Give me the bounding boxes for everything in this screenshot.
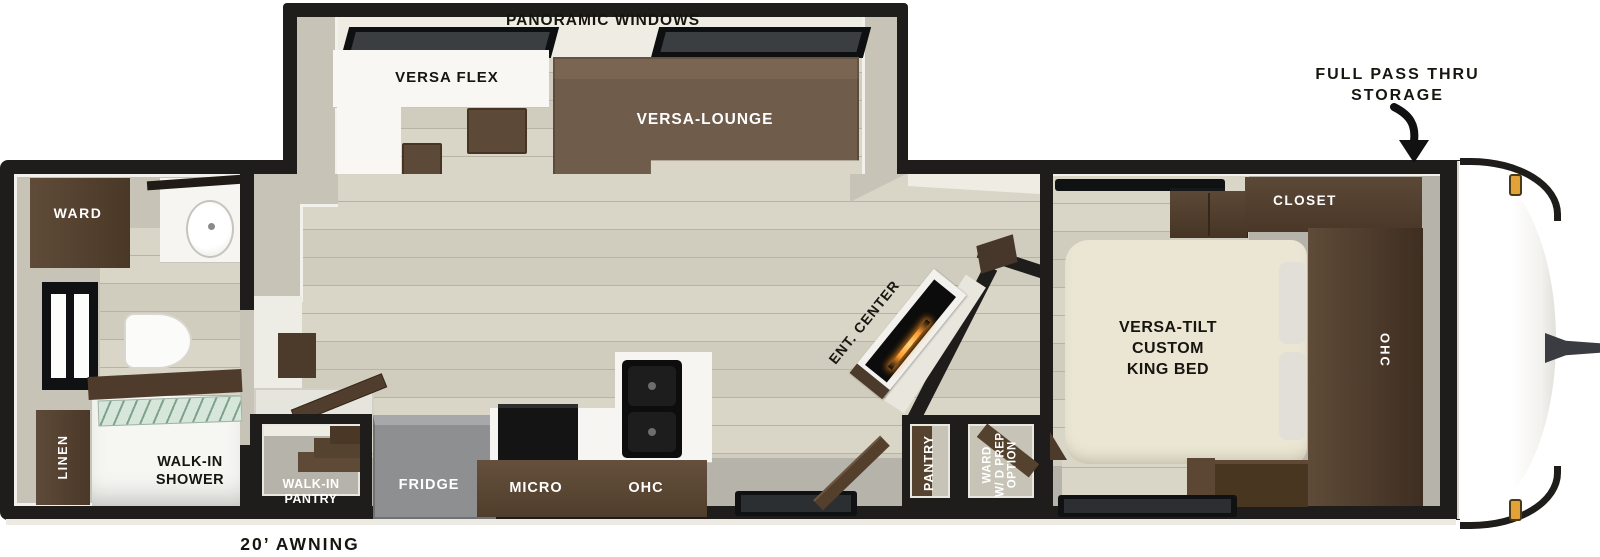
tongue-jack: [1545, 333, 1600, 363]
bathroom-ward-cabinet: [30, 178, 130, 268]
pantry-step: [330, 426, 360, 444]
window-pane: [51, 294, 66, 378]
bathroom-ward-label: WARD: [28, 205, 128, 221]
storage-arrow: [1350, 103, 1440, 167]
bedroom-bottom-window: [1058, 495, 1237, 517]
bedroom-ohc-label: OHC: [1378, 329, 1393, 373]
bedroom-ohc-cabinet: [1308, 228, 1423, 506]
slideout-left-wall-face: [297, 17, 338, 174]
panoramic-windows-label: PANORAMIC WINDOWS: [453, 12, 753, 30]
left-wall-face: [254, 174, 303, 302]
kitchen-ohc-label: OHC: [596, 480, 696, 496]
bed-pillow: [1279, 262, 1306, 344]
sink-drain: [648, 428, 656, 436]
awning-rail: [6, 519, 1456, 525]
marker-light: [1509, 174, 1522, 196]
walk-in-pantry-label: WALK-IN PANTRY: [251, 477, 371, 507]
window-pane: [74, 294, 89, 378]
versa-flex-label: VERSA FLEX: [347, 69, 547, 86]
full-pass-thru-storage-label: FULL PASS THRU STORAGE: [1290, 64, 1505, 106]
window-glass: [1064, 499, 1231, 513]
pantry-label: PANTRY: [922, 426, 936, 500]
closet-label: CLOSET: [1245, 193, 1365, 208]
window-glass: [350, 32, 549, 52]
bath-partition-wall-upper: [240, 174, 254, 310]
window-glass: [660, 32, 861, 52]
king-bed-label: VERSA-TILT CUSTOM KING BED: [1068, 317, 1268, 380]
sink-drain: [208, 223, 215, 230]
bedroom-front-wall: [1440, 174, 1450, 506]
linen-label: LINEN: [56, 422, 70, 492]
left-wall-face-top: [300, 174, 338, 207]
shower-glass-door: [98, 395, 243, 426]
marker-light: [1509, 499, 1522, 521]
versa-lounge-label: VERSA-LOUNGE: [605, 111, 805, 129]
bath-wall-cabinet: [278, 333, 316, 378]
rv-floorplan: PANORAMIC WINDOWS VERSA FLEX VERSA-LOUNG…: [0, 0, 1600, 557]
sink-drain: [648, 382, 656, 390]
stove-cooktop: [498, 404, 578, 464]
ottoman: [467, 108, 527, 154]
toilet: [124, 313, 192, 369]
fridge-label: FRIDGE: [379, 477, 479, 493]
awning-label: 20’ AWNING: [200, 534, 400, 555]
cabinet-door-line: [1208, 193, 1210, 236]
bed-step: [1187, 458, 1215, 500]
panoramic-window-right: [651, 27, 871, 58]
bed-pillow: [1279, 352, 1306, 440]
ward-wd-label: WARD W/ D PREP OPTION: [981, 425, 1019, 505]
walk-in-shower-label: WALK-IN SHOWER: [120, 453, 260, 489]
bath-partition-wall-lower: [240, 445, 254, 506]
micro-label: MICRO: [486, 480, 586, 496]
